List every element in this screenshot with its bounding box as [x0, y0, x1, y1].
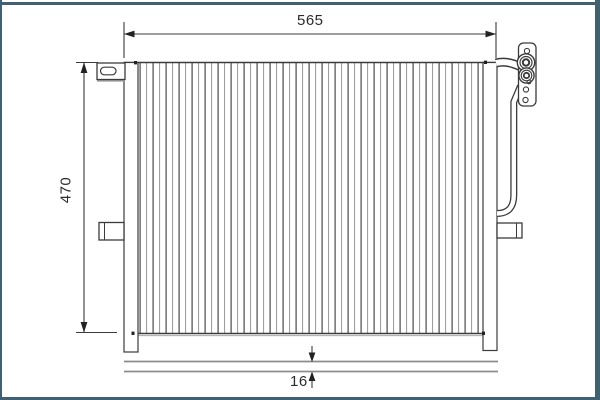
corner-pad-bottom-right: [482, 332, 485, 335]
lower-right-mount-pin: [497, 223, 522, 238]
arrow-down: [309, 353, 316, 363]
depth-dimension-label: 16: [290, 374, 308, 389]
core-fins: [138, 63, 483, 333]
bolt-hole-mid: [523, 87, 528, 92]
arrow-up: [81, 63, 88, 74]
arrow-down: [81, 322, 88, 333]
width-dimension-label: 565: [297, 13, 324, 28]
pin-body: [497, 223, 522, 238]
corner-pad-top-left: [134, 61, 137, 64]
lower-port: [519, 68, 534, 83]
arrow-up: [309, 372, 316, 382]
inlet-outlet-assembly: [496, 43, 536, 214]
bolt-hole-top: [524, 48, 529, 53]
lower-left-mount-pin: [99, 223, 124, 241]
corner-pad-bottom-left: [132, 332, 135, 335]
bracket-slot: [101, 67, 117, 75]
condenser-core: [124, 61, 497, 352]
condenser-diagram: [0, 0, 600, 400]
left-side-plate: [124, 63, 138, 353]
arrow-left: [124, 31, 135, 38]
arrow-right: [486, 31, 497, 38]
condenser-side-view: [124, 362, 498, 372]
height-dimension-label: 470: [59, 177, 74, 204]
right-side-plate: [483, 63, 497, 351]
bolt-hole-bottom: [523, 97, 528, 102]
corner-pad-top-right: [484, 61, 487, 64]
upper-left-mount-bracket: [97, 63, 125, 81]
technical-drawing-page: 565 470 16: [0, 0, 600, 400]
height-dimension: [76, 63, 117, 333]
down-pipe-outline: [497, 86, 521, 214]
depth-dimension: [309, 346, 316, 388]
pin-body: [99, 223, 124, 241]
